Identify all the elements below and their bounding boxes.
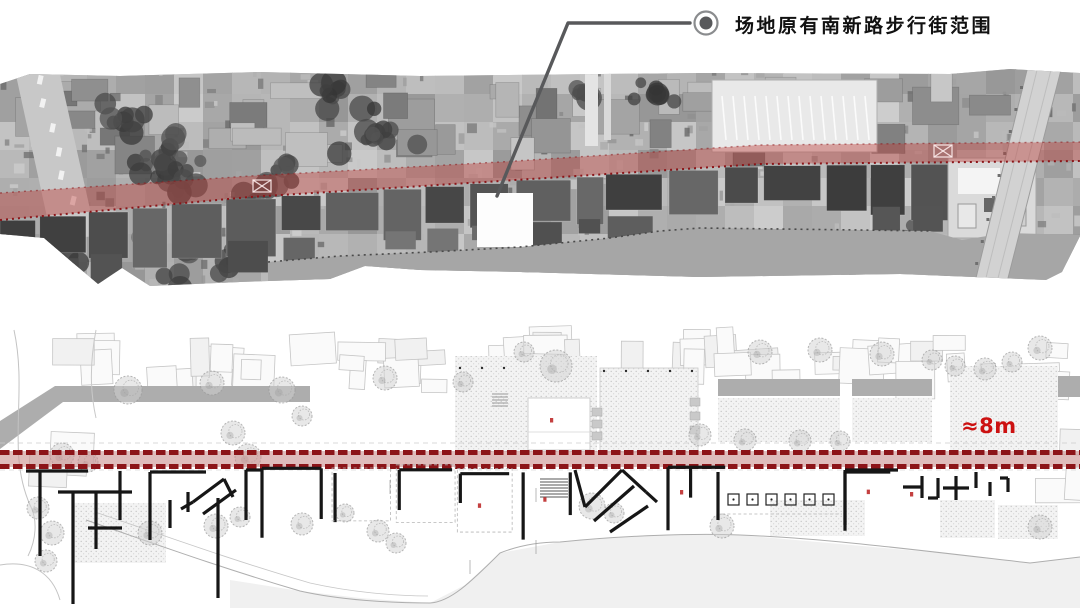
plan-paving [600,368,698,452]
aerial-white-patch [477,193,533,247]
plan-water [230,535,1080,608]
aerial-plaza [712,80,877,152]
plan-paving [852,398,932,442]
portfolio-page: 场地原有南新路步行街范围 ≈8m [0,0,1080,608]
site-plan [0,326,1080,608]
callout-label: 场地原有南新路步行街范围 [735,11,993,38]
plan-street [0,386,310,449]
aerial-photo [0,66,1080,301]
plan-paving [770,500,865,536]
corridor-width-label: ≈8m [961,414,1017,438]
target-bullet-icon [695,12,718,35]
drawing-canvas [0,0,1080,608]
plan-street [852,379,932,396]
plan-paving [940,500,995,538]
room-number-mark [867,490,870,495]
plan-street [718,379,840,396]
room-number-mark [478,503,481,508]
room-number-mark [543,497,546,502]
room-number-mark [910,492,913,497]
room-number-mark [550,418,553,423]
room-number-mark [680,490,683,495]
